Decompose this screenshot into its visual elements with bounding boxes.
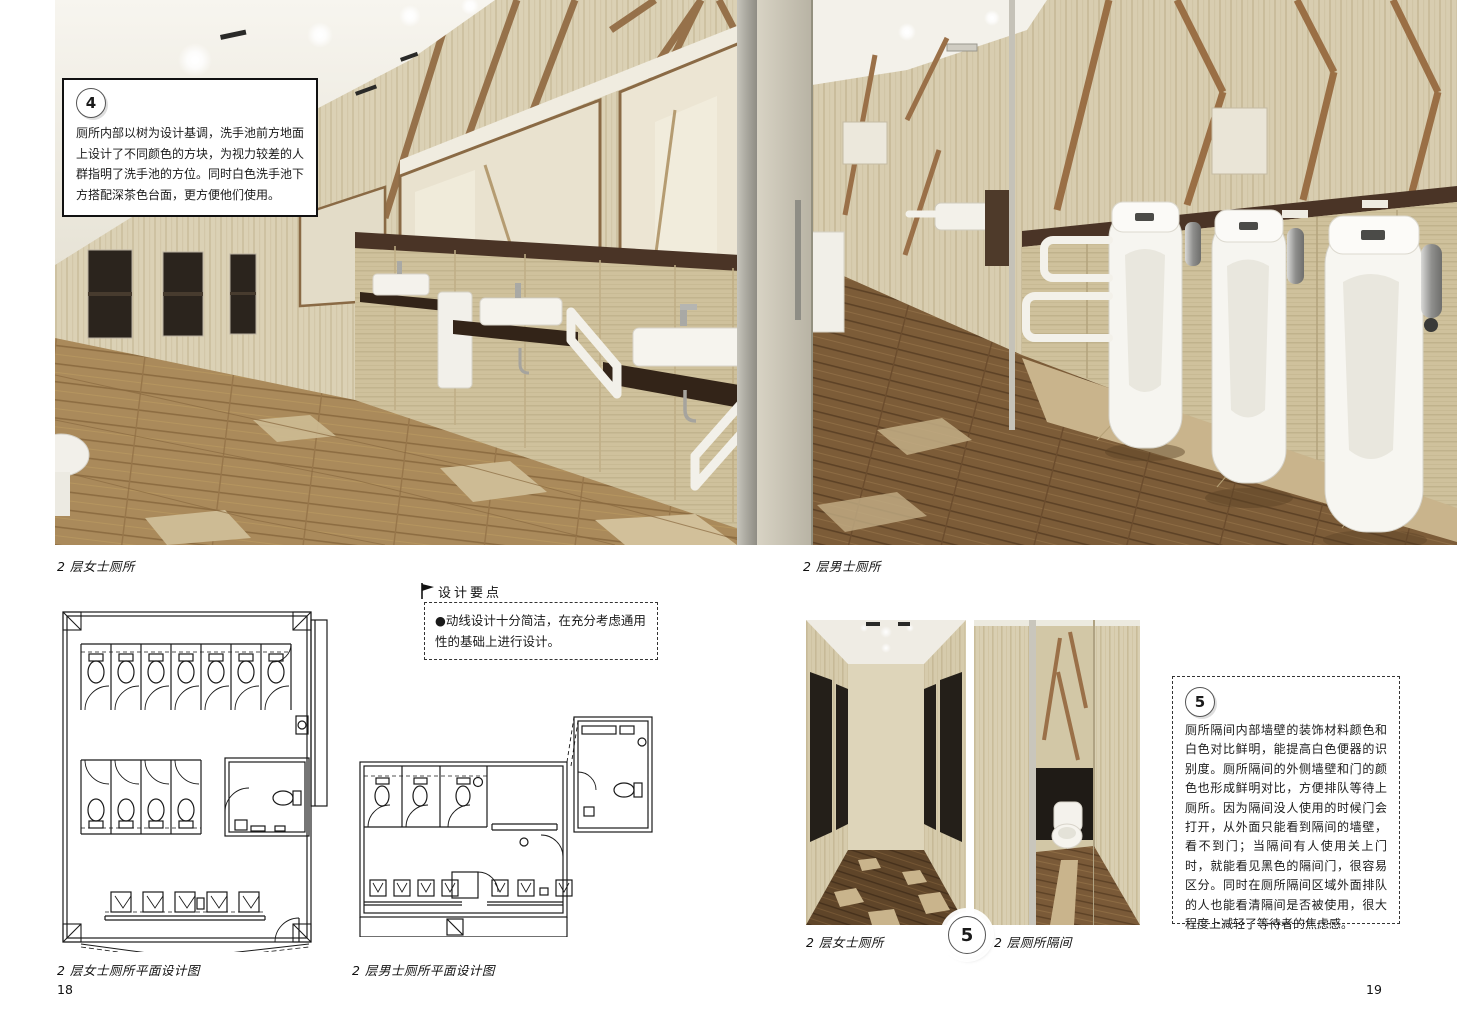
stamp-5: 5 [944,912,990,958]
flag-icon [419,582,435,604]
access-panel [1212,108,1267,174]
caption-women-plan: 2 层女士厕所平面设计图 [57,960,200,979]
far-wall [848,664,924,850]
door-frame [757,0,812,545]
caption-corridor: 2 层女士厕所 [806,932,884,951]
caption-women-main: 2 层女士厕所 [57,556,135,575]
design-points-title: 设计要点 [438,582,502,601]
door-handle [795,200,801,320]
floor-plan-women [53,598,339,956]
caption-stall: 2 层厕所隔间 [994,932,1072,951]
floor-plan-women-art [53,598,339,952]
design-points-text: ●动线设计十分简洁，在充分考虑通用性的基础上进行设计。 [435,610,647,652]
wall-niches [88,250,256,338]
photo-stall-art [974,620,1140,925]
door-frame-edge [737,0,757,545]
page-number-left: 18 [57,982,73,997]
caption-men-main: 2 层男士厕所 [803,556,881,575]
note-box-4: 4 厕所内部以树为设计基调，洗手池前方地面上设计了不同颜色的方块，为视力较差的人… [62,78,318,217]
note-4-text: 厕所内部以树为设计基调，洗手池前方地面上设计了不同颜色的方块，为视力较差的人群指… [76,123,304,205]
page-number-right: 19 [1366,982,1382,997]
book-spread-page: 2 层女士厕所 2 层男士厕所 4 厕所内部以树为设计基调，洗手池前方地面上设计… [0,0,1457,1024]
floor-plan-men-art [352,712,657,937]
photo-corridor [806,620,966,925]
stamp-5-number: 5 [948,916,986,954]
hand-dryer [438,292,472,388]
wall-plate [1362,200,1388,208]
note-5-text: 厕所隔间内部墙壁的装饰材料颜色和白色对比鲜明，能提高白色便器的识别度。厕所隔间的… [1185,721,1387,934]
ceiling-strip [974,620,1140,626]
wall-plate [1282,210,1308,218]
note-4-number: 4 [76,88,106,118]
stall-interior [1036,626,1094,925]
caption-men-plan: 2 层男士厕所平面设计图 [352,960,495,979]
design-points-box: ●动线设计十分简洁，在充分考虑通用性的基础上进行设计。 [424,602,658,660]
photo-stall [974,620,1140,925]
door-edge [1029,620,1036,925]
note-5-number: 5 [1185,687,1215,717]
floor-plan-men [352,712,657,941]
photo-men-restroom [757,0,1457,545]
photo-men-restroom-art [757,0,1457,545]
note-box-5: 5 厕所隔间内部墙壁的装饰材料颜色和白色对比鲜明，能提高白色便器的识别度。厕所隔… [1172,676,1400,924]
pillar-trim [1009,0,1015,430]
photo-corridor-art [806,620,966,925]
